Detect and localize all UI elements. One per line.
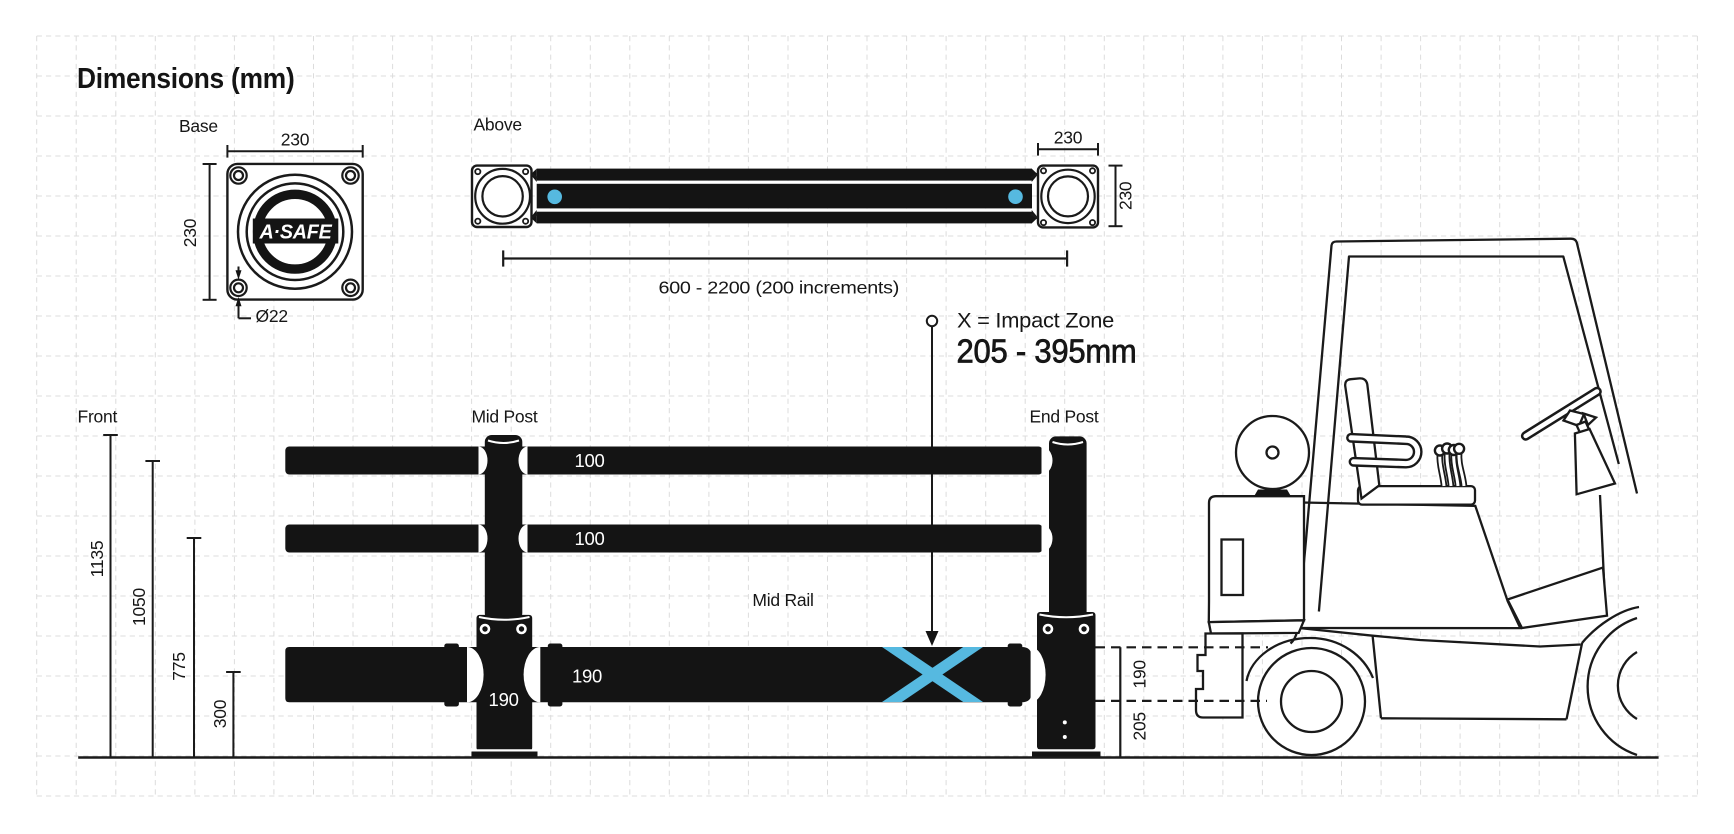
svg-text:End Post: End Post: [1029, 407, 1098, 427]
svg-text:205: 205: [1130, 712, 1150, 740]
svg-text:Mid Post: Mid Post: [471, 407, 537, 427]
svg-text:190: 190: [489, 689, 519, 710]
svg-text:A·SAFE: A·SAFE: [259, 222, 333, 244]
svg-text:Base: Base: [179, 116, 218, 136]
svg-text:Front: Front: [78, 407, 118, 427]
svg-text:230: 230: [1054, 128, 1083, 148]
svg-text:190: 190: [572, 666, 602, 687]
svg-text:100: 100: [574, 450, 604, 471]
svg-text:230: 230: [1116, 181, 1136, 210]
svg-text:230: 230: [180, 218, 200, 247]
svg-text:Above: Above: [474, 115, 522, 135]
svg-text:100: 100: [574, 528, 604, 549]
svg-text:775: 775: [169, 652, 189, 680]
svg-text:230: 230: [281, 129, 310, 149]
svg-text:205 - 395mm: 205 - 395mm: [957, 334, 1137, 371]
svg-text:1050: 1050: [129, 588, 149, 626]
svg-text:300: 300: [210, 699, 230, 728]
svg-text:X = Impact Zone: X = Impact Zone: [957, 309, 1114, 333]
svg-text:Ø22: Ø22: [256, 306, 288, 326]
svg-text:190: 190: [1130, 660, 1150, 689]
svg-text:600 - 2200 (200 increments): 600 - 2200 (200 increments): [659, 278, 900, 298]
svg-text:Mid Rail: Mid Rail: [752, 590, 813, 610]
svg-text:Dimensions (mm): Dimensions (mm): [77, 63, 295, 95]
svg-text:1135: 1135: [87, 541, 107, 578]
